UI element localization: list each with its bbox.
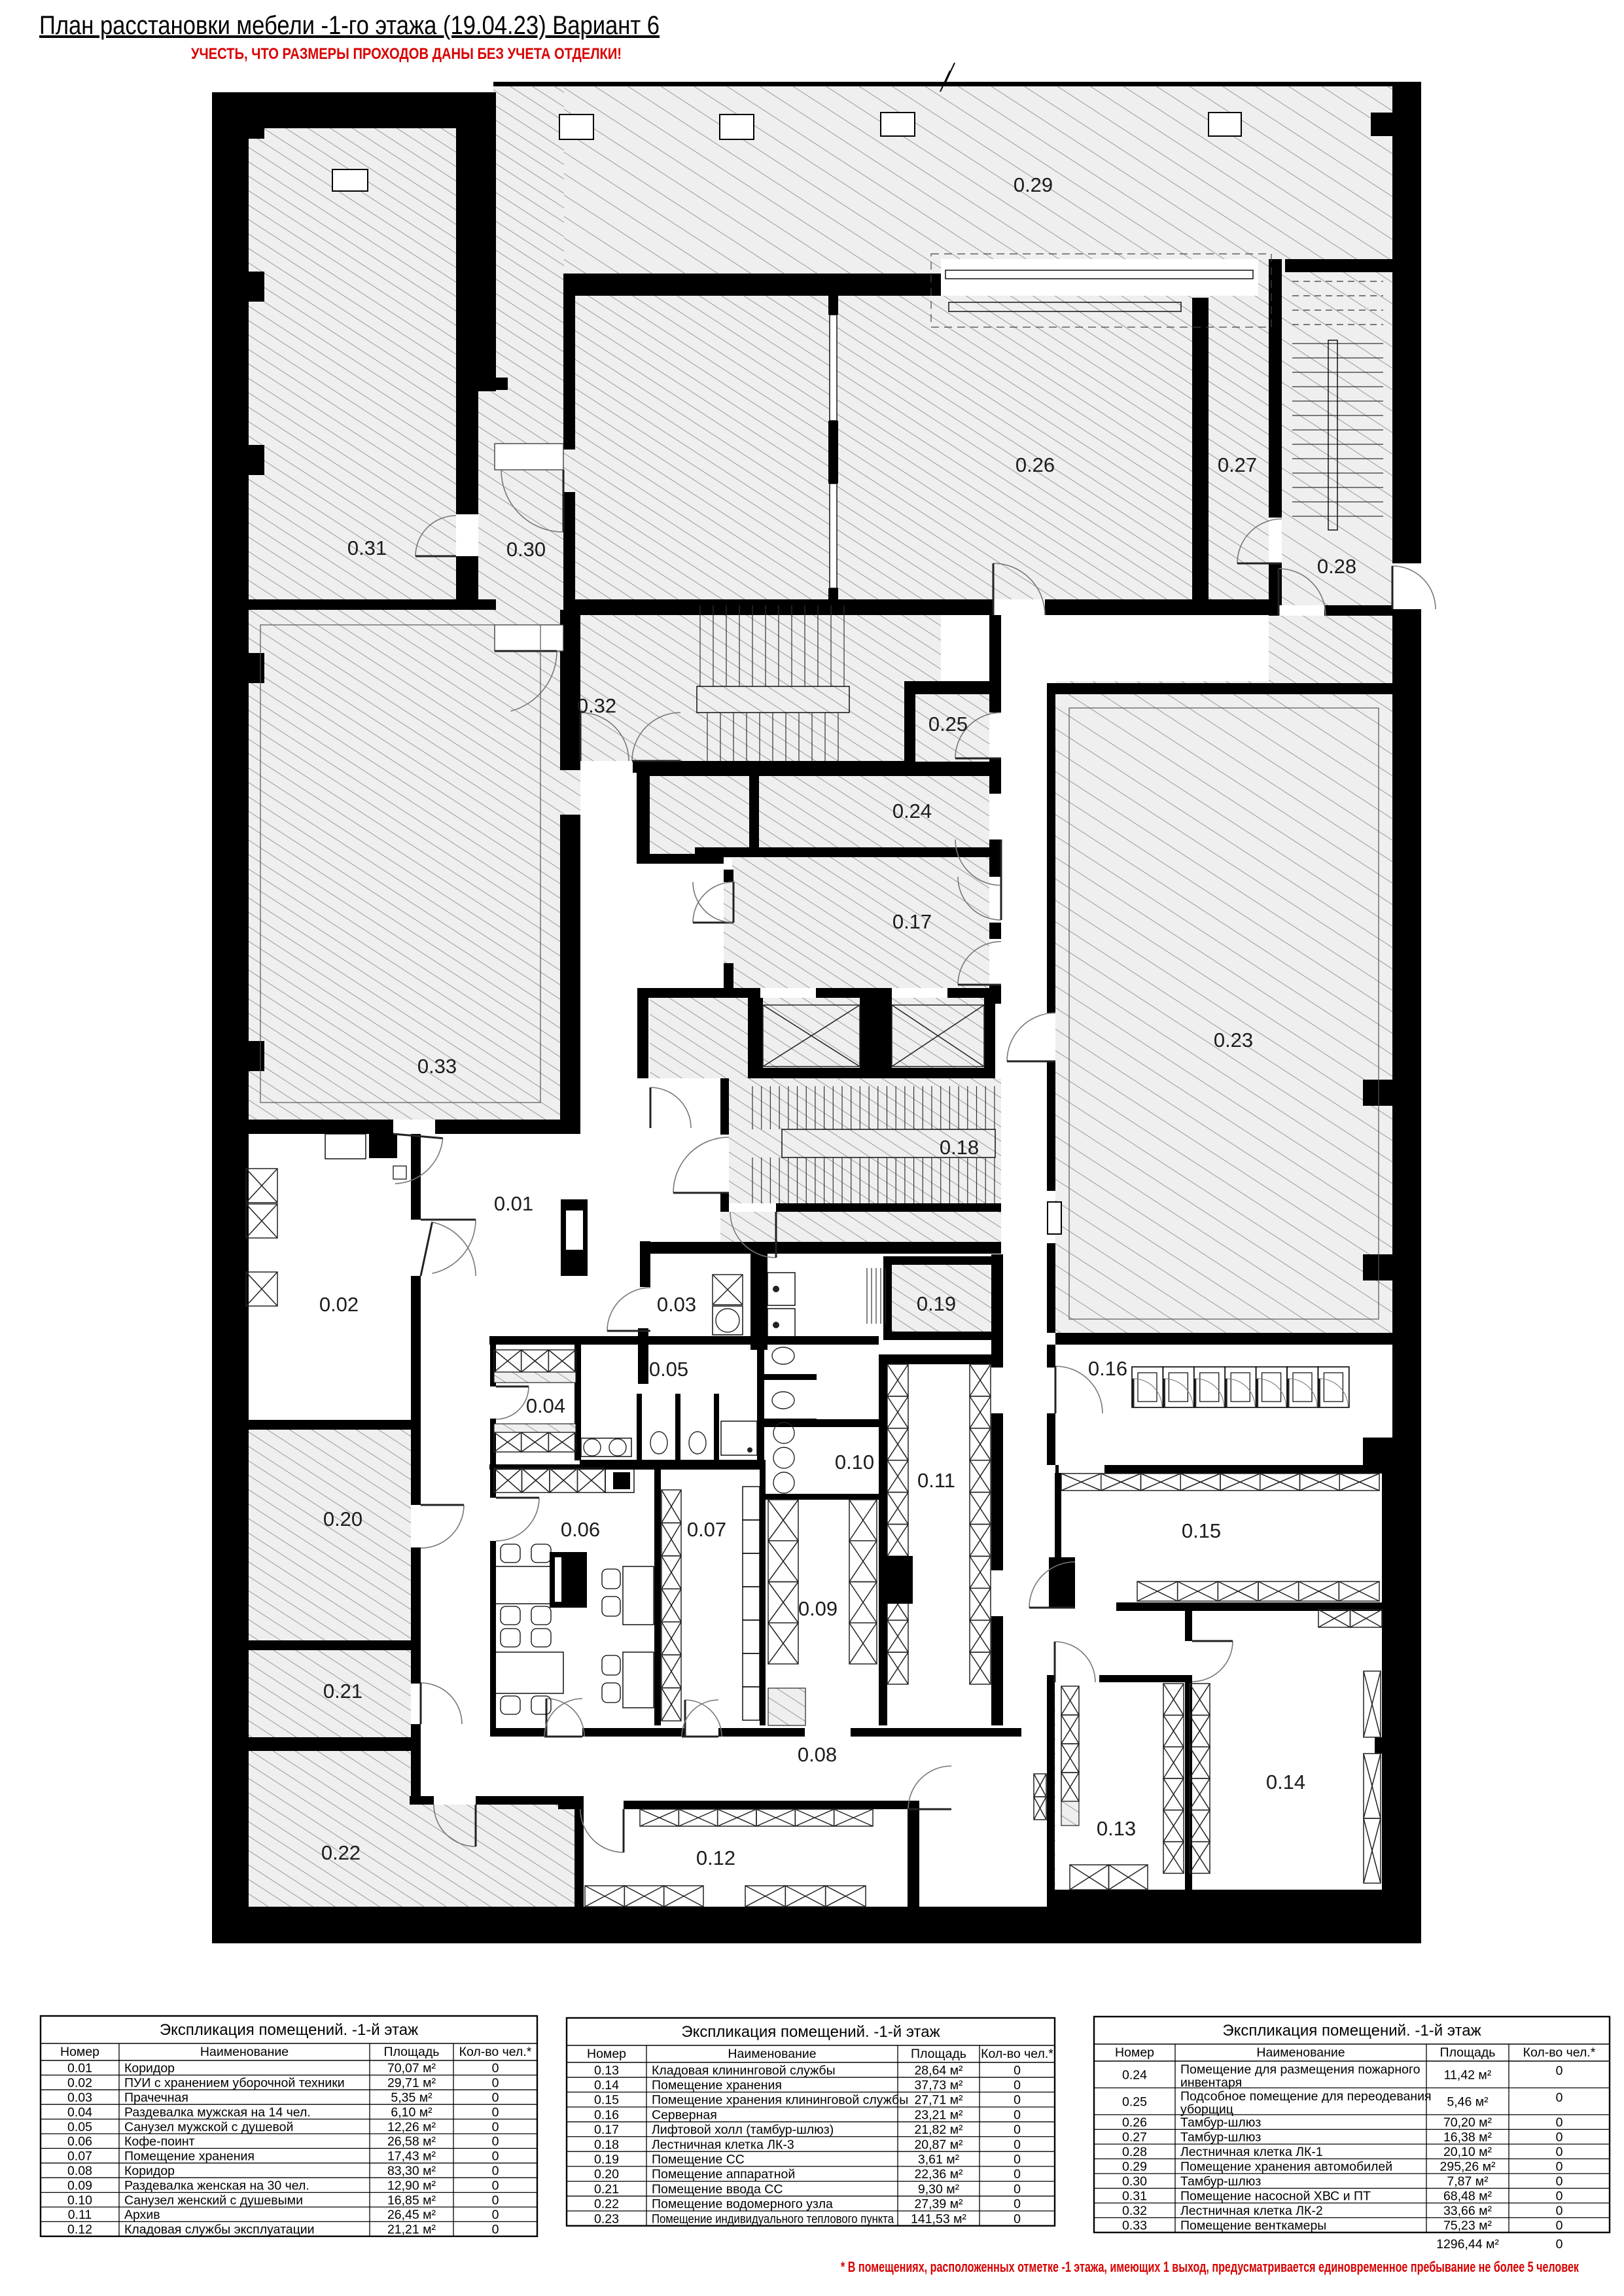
svg-text:0.14: 0.14 xyxy=(1266,1771,1305,1793)
svg-text:9,30 м²: 9,30 м² xyxy=(918,2182,960,2197)
svg-text:0.20: 0.20 xyxy=(594,2167,619,2181)
svg-text:0.31: 0.31 xyxy=(347,537,387,559)
svg-text:0: 0 xyxy=(1556,2115,1563,2130)
svg-text:0.15: 0.15 xyxy=(594,2093,619,2108)
svg-text:0: 0 xyxy=(492,2164,499,2178)
svg-text:0: 0 xyxy=(1014,2212,1021,2226)
svg-text:27,71 м²: 27,71 м² xyxy=(914,2093,963,2108)
svg-text:5,46 м²: 5,46 м² xyxy=(1447,2094,1489,2109)
svg-text:Наименование: Наименование xyxy=(1256,2045,1345,2060)
svg-text:0.19: 0.19 xyxy=(917,1292,956,1315)
svg-text:инвентаря: инвентаря xyxy=(1180,2075,1242,2090)
svg-text:Санузел мужской с душевой: Санузел мужской с душевой xyxy=(124,2120,293,2134)
svg-text:Номер: Номер xyxy=(587,2047,626,2061)
svg-text:0.18: 0.18 xyxy=(940,1136,979,1159)
svg-text:0: 0 xyxy=(1556,2204,1563,2218)
svg-text:12,90 м²: 12,90 м² xyxy=(387,2178,436,2193)
svg-text:11,42 м²: 11,42 м² xyxy=(1444,2068,1492,2083)
svg-text:0: 0 xyxy=(1014,2063,1021,2077)
svg-text:68,48 м²: 68,48 м² xyxy=(1443,2189,1492,2204)
svg-text:0: 0 xyxy=(492,2193,499,2208)
svg-text:Кол-во чел.*: Кол-во чел.* xyxy=(1523,2045,1596,2060)
svg-text:0: 0 xyxy=(492,2223,499,2237)
svg-text:0.02: 0.02 xyxy=(319,1293,359,1316)
svg-text:0.16: 0.16 xyxy=(1088,1357,1127,1380)
svg-text:0.04: 0.04 xyxy=(67,2105,92,2119)
svg-text:0.26: 0.26 xyxy=(1015,453,1055,476)
svg-text:0.30: 0.30 xyxy=(506,538,546,561)
svg-text:Помещение индивидуального тепл: Помещение индивидуального теплового пунк… xyxy=(652,2212,894,2226)
svg-text:0.12: 0.12 xyxy=(67,2223,92,2237)
svg-text:Лестничная клетка ЛК-2: Лестничная клетка ЛК-2 xyxy=(1180,2204,1323,2218)
svg-text:0.01: 0.01 xyxy=(67,2061,92,2075)
svg-text:0.07: 0.07 xyxy=(687,1518,726,1541)
svg-text:0: 0 xyxy=(1556,2091,1563,2105)
svg-text:28,64 м²: 28,64 м² xyxy=(914,2063,963,2077)
svg-text:Тамбур-шлюз: Тамбур-шлюз xyxy=(1180,2174,1261,2189)
svg-text:0.18: 0.18 xyxy=(594,2138,619,2152)
svg-text:Площадь: Площадь xyxy=(384,2045,440,2059)
svg-text:37,73 м²: 37,73 м² xyxy=(914,2078,963,2093)
svg-text:17,43 м²: 17,43 м² xyxy=(387,2149,436,2164)
svg-text:0.30: 0.30 xyxy=(1122,2174,1147,2189)
svg-text:0.05: 0.05 xyxy=(649,1358,688,1381)
svg-text:0.01: 0.01 xyxy=(494,1192,533,1215)
svg-text:16,85 м²: 16,85 м² xyxy=(387,2193,436,2208)
svg-text:0.25: 0.25 xyxy=(1122,2094,1147,2109)
svg-text:Помещение хранения автомобилей: Помещение хранения автомобилей xyxy=(1180,2160,1392,2174)
svg-text:0.20: 0.20 xyxy=(323,1508,362,1530)
svg-text:Помещение хранения: Помещение хранения xyxy=(652,2078,782,2093)
svg-text:Раздевалка женская на 30 чел.: Раздевалка женская на 30 чел. xyxy=(124,2178,309,2193)
svg-text:20,87 м²: 20,87 м² xyxy=(914,2138,963,2152)
svg-text:Серверная: Серверная xyxy=(652,2108,717,2122)
svg-text:0.14: 0.14 xyxy=(594,2078,619,2093)
svg-text:0.21: 0.21 xyxy=(594,2182,619,2197)
svg-text:26,45 м²: 26,45 м² xyxy=(387,2208,436,2222)
svg-text:0.23: 0.23 xyxy=(1214,1029,1253,1051)
svg-text:0: 0 xyxy=(1014,2108,1021,2122)
svg-text:0: 0 xyxy=(492,2091,499,2105)
svg-text:Номер: Номер xyxy=(1115,2045,1154,2060)
svg-text:Помещение аппаратной: Помещение аппаратной xyxy=(652,2167,795,2181)
svg-text:Площадь: Площадь xyxy=(911,2047,966,2061)
svg-text:Номер: Номер xyxy=(60,2045,99,2059)
svg-text:22,36 м²: 22,36 м² xyxy=(914,2167,963,2181)
svg-text:Лестничная клетка ЛК-3: Лестничная клетка ЛК-3 xyxy=(652,2138,794,2152)
svg-text:0.22: 0.22 xyxy=(321,1841,361,1864)
svg-text:0.33: 0.33 xyxy=(1122,2219,1147,2233)
svg-text:0: 0 xyxy=(1556,2174,1563,2189)
svg-text:Кол-во чел.*: Кол-во чел.* xyxy=(459,2045,532,2059)
svg-text:141,53 м²: 141,53 м² xyxy=(911,2212,966,2226)
svg-text:УЧЕСТЬ, ЧТО РАЗМЕРЫ ПРОХОДОВ Д: УЧЕСТЬ, ЧТО РАЗМЕРЫ ПРОХОДОВ ДАНЫ БЕЗ УЧ… xyxy=(191,45,622,63)
svg-text:0.17: 0.17 xyxy=(594,2123,619,2137)
svg-text:Помещение ввода СС: Помещение ввода СС xyxy=(652,2182,783,2197)
svg-text:0.23: 0.23 xyxy=(594,2212,619,2226)
svg-text:0: 0 xyxy=(492,2105,499,2119)
svg-text:Кладовая службы эксплуатации: Кладовая службы эксплуатации xyxy=(124,2223,315,2237)
svg-text:0: 0 xyxy=(1014,2123,1021,2137)
svg-text:0.32: 0.32 xyxy=(577,694,616,717)
svg-text:0: 0 xyxy=(492,2178,499,2193)
svg-text:0.06: 0.06 xyxy=(561,1518,600,1541)
svg-text:0: 0 xyxy=(1556,2064,1563,2078)
svg-text:0: 0 xyxy=(1014,2138,1021,2152)
svg-text:0: 0 xyxy=(492,2120,499,2134)
svg-text:0.08: 0.08 xyxy=(67,2164,92,2178)
svg-text:0.27: 0.27 xyxy=(1122,2130,1147,2145)
svg-text:0: 0 xyxy=(1014,2167,1021,2181)
svg-text:Тамбур-шлюз: Тамбур-шлюз xyxy=(1180,2130,1261,2145)
svg-text:0.12: 0.12 xyxy=(696,1846,735,1869)
svg-text:0: 0 xyxy=(1556,2130,1563,2145)
svg-text:20,10 м²: 20,10 м² xyxy=(1443,2145,1492,2159)
svg-text:0: 0 xyxy=(1014,2197,1021,2212)
svg-text:0.29: 0.29 xyxy=(1122,2160,1147,2174)
svg-text:Наименование: Наименование xyxy=(728,2047,816,2061)
svg-text:0: 0 xyxy=(492,2149,499,2164)
svg-text:0.33: 0.33 xyxy=(417,1055,457,1078)
svg-text:Помещение насосной ХВС и ПТ: Помещение насосной ХВС и ПТ xyxy=(1180,2189,1371,2204)
svg-text:75,23 м²: 75,23 м² xyxy=(1443,2219,1492,2233)
svg-text:3,61 м²: 3,61 м² xyxy=(918,2153,960,2167)
svg-text:27,39 м²: 27,39 м² xyxy=(914,2197,963,2212)
svg-text:ПУИ с хранением уборочной техн: ПУИ с хранением уборочной техники xyxy=(124,2076,345,2091)
svg-text:Помещение хранения: Помещение хранения xyxy=(124,2149,255,2164)
svg-text:Тамбур-шлюз: Тамбур-шлюз xyxy=(1180,2115,1261,2130)
svg-text:0.28: 0.28 xyxy=(1317,555,1356,578)
svg-text:70,20 м²: 70,20 м² xyxy=(1443,2115,1492,2130)
svg-text:Кофе-поинт: Кофе-поинт xyxy=(124,2134,195,2149)
svg-text:0.11: 0.11 xyxy=(917,1469,955,1492)
svg-text:0.17: 0.17 xyxy=(892,910,932,933)
svg-text:Прачечная: Прачечная xyxy=(124,2091,188,2105)
svg-text:Санузел женский с душевыми: Санузел женский с душевыми xyxy=(124,2193,303,2208)
svg-text:0.03: 0.03 xyxy=(67,2091,92,2105)
svg-text:Площадь: Площадь xyxy=(1440,2045,1496,2060)
svg-text:12,26 м²: 12,26 м² xyxy=(387,2120,436,2134)
svg-text:0.25: 0.25 xyxy=(928,713,968,735)
svg-text:Помещение хранения клининговой: Помещение хранения клининговой службы xyxy=(652,2093,908,2108)
svg-text:0.31: 0.31 xyxy=(1122,2189,1147,2204)
svg-text:0: 0 xyxy=(1556,2145,1563,2159)
svg-text:0.13: 0.13 xyxy=(594,2063,619,2077)
svg-text:0: 0 xyxy=(492,2208,499,2222)
svg-text:0.24: 0.24 xyxy=(1122,2068,1147,2083)
svg-text:0.04: 0.04 xyxy=(526,1394,565,1417)
svg-text:26,58 м²: 26,58 м² xyxy=(387,2134,436,2149)
svg-text:0.05: 0.05 xyxy=(67,2120,92,2134)
svg-text:0: 0 xyxy=(1556,2189,1563,2204)
svg-text:0.15: 0.15 xyxy=(1182,1519,1221,1542)
svg-text:21,21 м²: 21,21 м² xyxy=(387,2223,436,2237)
svg-text:0.09: 0.09 xyxy=(67,2178,92,2193)
svg-text:Наименование: Наименование xyxy=(200,2045,289,2059)
svg-text:Экспликация помещений. -1-й эт: Экспликация помещений. -1-й этаж xyxy=(1222,2022,1481,2040)
svg-text:0: 0 xyxy=(1556,2219,1563,2233)
svg-text:0.32: 0.32 xyxy=(1122,2204,1147,2218)
svg-text:0.06: 0.06 xyxy=(67,2134,92,2149)
svg-text:0: 0 xyxy=(1556,2237,1563,2252)
svg-text:0.27: 0.27 xyxy=(1218,453,1257,476)
svg-text:План расстановки мебели -1-го: План расстановки мебели -1-го этажа (19.… xyxy=(39,11,660,40)
svg-text:23,21 м²: 23,21 м² xyxy=(914,2108,963,2122)
svg-text:Помещение для размещения пожар: Помещение для размещения пожарного xyxy=(1180,2062,1421,2077)
svg-text:Подсобное помещение для переод: Подсобное помещение для переодевания xyxy=(1180,2089,1432,2104)
svg-text:0.26: 0.26 xyxy=(1122,2115,1147,2130)
svg-text:* В помещениях, расположенных: * В помещениях, расположенных отметке -1… xyxy=(841,2259,1580,2275)
svg-text:Кол-во чел.*: Кол-во чел.* xyxy=(981,2047,1053,2061)
svg-text:Коридор: Коридор xyxy=(124,2061,175,2075)
svg-text:0: 0 xyxy=(1014,2153,1021,2167)
svg-text:0.02: 0.02 xyxy=(67,2076,92,2091)
svg-text:0: 0 xyxy=(492,2061,499,2075)
svg-text:0: 0 xyxy=(1014,2182,1021,2197)
svg-text:1296,44 м²: 1296,44 м² xyxy=(1436,2237,1499,2252)
svg-text:0.29: 0.29 xyxy=(1014,173,1053,196)
svg-text:уборщиц: уборщиц xyxy=(1180,2102,1233,2117)
svg-text:Помещение СС: Помещение СС xyxy=(652,2153,745,2167)
svg-text:0.19: 0.19 xyxy=(594,2153,619,2167)
svg-text:0.21: 0.21 xyxy=(323,1680,362,1703)
svg-text:0.03: 0.03 xyxy=(657,1293,696,1316)
svg-text:0.07: 0.07 xyxy=(67,2149,92,2164)
svg-text:0.10: 0.10 xyxy=(67,2193,92,2208)
svg-text:Лифтовой холл (тамбур-шлюз): Лифтовой холл (тамбур-шлюз) xyxy=(652,2123,834,2137)
svg-text:Помещение водомерного узла: Помещение водомерного узла xyxy=(652,2197,833,2212)
svg-text:21,82 м²: 21,82 м² xyxy=(914,2123,963,2137)
svg-text:0.13: 0.13 xyxy=(1097,1817,1136,1840)
svg-text:0.22: 0.22 xyxy=(594,2197,619,2212)
svg-text:0: 0 xyxy=(1014,2093,1021,2108)
svg-text:0.11: 0.11 xyxy=(68,2208,92,2222)
svg-text:Экспликация помещений. -1-й эт: Экспликация помещений. -1-й этаж xyxy=(681,2023,940,2041)
svg-text:Экспликация помещений. -1-й эт: Экспликация помещений. -1-й этаж xyxy=(160,2021,418,2039)
svg-text:0.28: 0.28 xyxy=(1122,2145,1147,2159)
svg-text:Помещение венткамеры: Помещение венткамеры xyxy=(1180,2219,1326,2233)
svg-text:0.24: 0.24 xyxy=(892,800,932,822)
svg-text:70,07 м²: 70,07 м² xyxy=(387,2061,436,2075)
svg-text:33,66 м²: 33,66 м² xyxy=(1443,2204,1492,2218)
svg-text:6,10 м²: 6,10 м² xyxy=(391,2105,432,2119)
svg-text:Кладовая клининговой службы: Кладовая клининговой службы xyxy=(652,2063,836,2077)
svg-text:29,71 м²: 29,71 м² xyxy=(387,2076,436,2091)
svg-text:295,26 м²: 295,26 м² xyxy=(1440,2160,1496,2174)
svg-text:Коридор: Коридор xyxy=(124,2164,175,2178)
svg-text:0.16: 0.16 xyxy=(594,2108,619,2122)
svg-text:0.09: 0.09 xyxy=(798,1597,838,1620)
svg-text:7,87 м²: 7,87 м² xyxy=(1447,2174,1489,2189)
svg-text:Архив: Архив xyxy=(124,2208,160,2222)
svg-text:0.08: 0.08 xyxy=(798,1743,837,1766)
svg-text:0: 0 xyxy=(492,2076,499,2091)
svg-text:Раздевалка мужская на 14 чел.: Раздевалка мужская на 14 чел. xyxy=(124,2105,311,2119)
svg-text:0.10: 0.10 xyxy=(835,1451,874,1474)
svg-text:16,38 м²: 16,38 м² xyxy=(1443,2130,1492,2145)
svg-text:0: 0 xyxy=(1556,2160,1563,2174)
svg-text:Лестничная клетка ЛК-1: Лестничная клетка ЛК-1 xyxy=(1180,2145,1323,2159)
svg-text:0: 0 xyxy=(492,2134,499,2149)
svg-text:5,35 м²: 5,35 м² xyxy=(391,2091,432,2105)
svg-text:83,30 м²: 83,30 м² xyxy=(387,2164,436,2178)
svg-text:0: 0 xyxy=(1014,2078,1021,2093)
